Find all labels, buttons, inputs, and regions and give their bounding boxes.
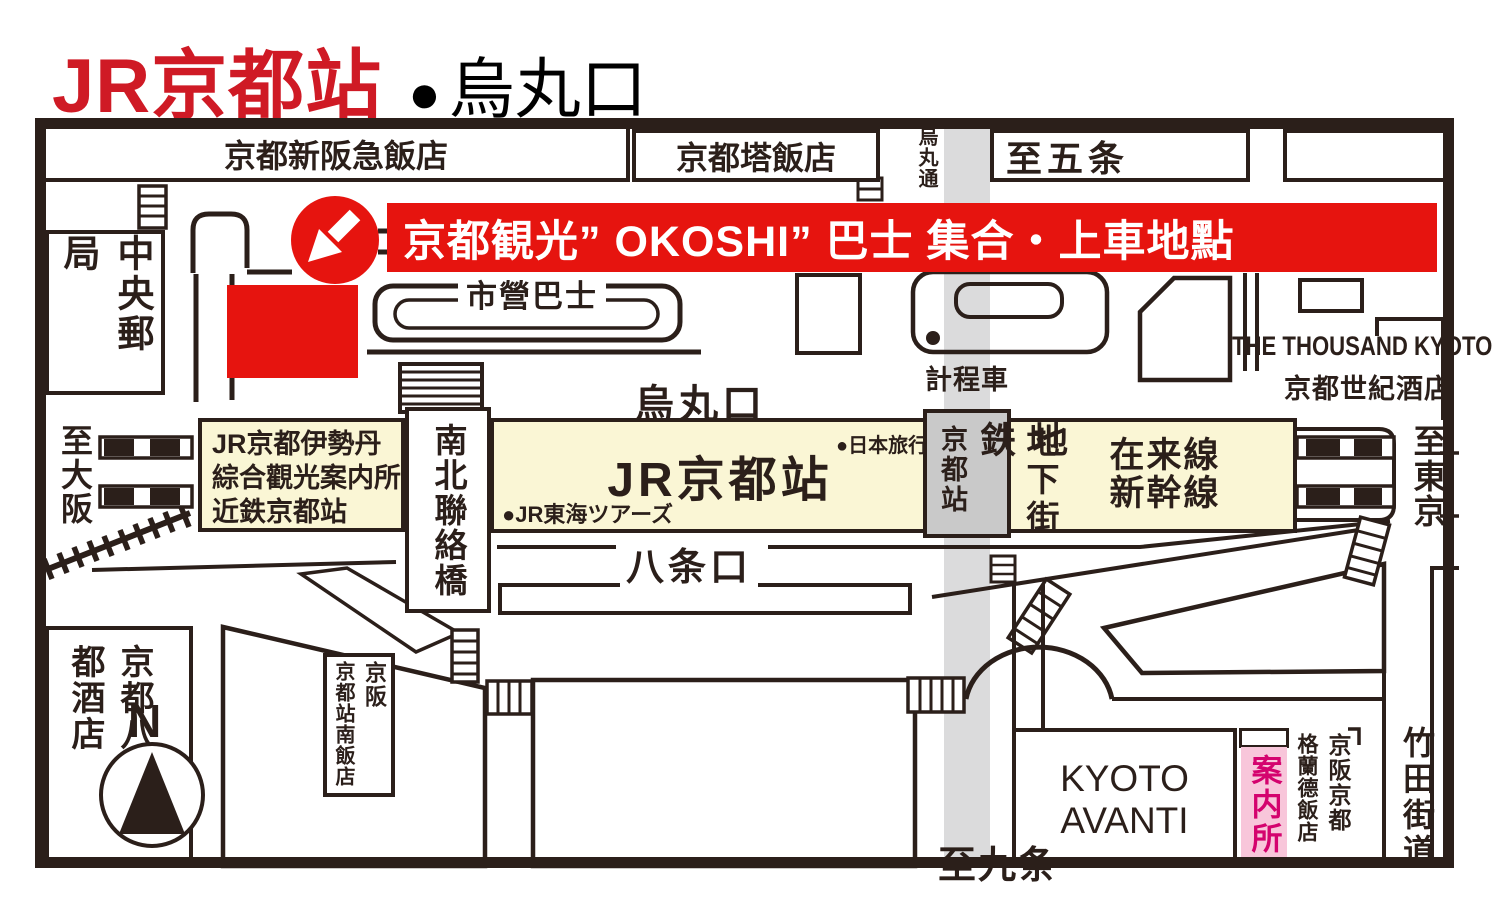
building-label-line3: 近鉄京都站 [212,495,401,529]
location-arrow-icon [291,196,379,284]
building-label: 中央郵局 [51,234,159,391]
road-to-gojo: 至五条 [990,129,1250,182]
bus-entry-road [193,214,247,273]
south-block [533,680,915,866]
conventional-lines-label: 在来線 [1090,437,1240,475]
jr-tokai-tours-label: ●JR東海ツアーズ [502,497,673,529]
north-compass-icon [99,742,205,848]
pedestrian-bridge-icon [400,364,482,412]
building-label-grande: 格蘭德飯店 [1291,733,1321,879]
thousand-kyoto-label-zh: 京都世紀酒店 [1284,367,1452,406]
direction-to-osaka: 至大阪 [52,424,98,526]
building-outline [1300,280,1362,311]
building-shin-hankyu-hotel: 京都新阪急飯店 [46,129,630,182]
street-label-takeda-kaido: 竹田街道 [1394,726,1440,870]
meeting-point-logo [291,196,379,284]
building-label-line1: JR京都伊勢丹 [212,427,401,461]
building-label-line2: 綜合觀光案内所 [212,461,401,495]
subway-kyoto-station: 京都站 地鉄 [923,409,1011,538]
building-kyoto-tower-hotel: 京都塔飯店 [632,129,880,182]
jr-tracks-east-icon [1297,429,1394,520]
street-label-karasuma-dori: 烏丸通 [912,126,941,208]
building-label: 京都新阪急飯店 [224,131,448,177]
compass-north-label: N [128,694,161,748]
building-label: 京都塔飯店 [676,133,836,179]
north-south-bridge: 南北聯絡橋 [405,407,491,613]
info-center-entrance [1239,728,1289,748]
crosswalk-icon [139,186,166,228]
rail-lines-label: 在来線 新幹線 [1090,437,1240,513]
direction-to-kujo: 至九条 [938,834,1058,889]
stairs-icon [452,630,478,682]
crosswalk-icon [908,678,964,712]
building-keihan-station-south-hotel: 京阪 京都站南飯店 [323,653,395,797]
direction-label: 至五条 [994,130,1129,182]
building-outline [1140,278,1230,380]
compass-needle [119,752,185,834]
taxi-label: 計程車 [925,358,1009,397]
bridge-label: 南北聯絡橋 [424,423,472,598]
building-label-hotel: 京都站南飯店 [329,661,358,789]
label-text: 市營巴士 [466,279,598,314]
taxi-rotary [913,272,1107,352]
map-page: JR京都站 ● 烏丸口 [0,0,1500,909]
thousand-kyoto-label-en: THE THOUSAND KYOTO [1232,331,1492,362]
shinkansen-label: 新幹線 [1090,475,1240,513]
building-label-line1: KYOTO [1016,758,1233,800]
boarding-point-marker [227,285,358,378]
building-central-post-office: 中央郵局 [45,230,165,395]
info-center: 案内所 [1241,747,1287,862]
building-label-keihan: 京阪 [358,661,390,789]
building-outline [1283,129,1454,182]
jr-tracks-west-icon [100,437,192,507]
city-bus-terminal-label: 市營巴士 [458,269,606,318]
crosswalk-diagonal-icon [1008,579,1070,653]
taxi-stop-dot-icon [926,331,940,345]
building-isetan-tourist-info: JR京都伊勢丹 綜合觀光案内所 近鉄京都站 [198,418,405,532]
building-label-keihan-kyoto: 京阪京都 [1321,733,1355,879]
info-center-label: 案内所 [1242,754,1287,856]
underground-mall-label: 地下街 [1016,424,1064,538]
crosswalk-icon [487,681,532,714]
banner-text: 京都観光” OKOSHI” 巴士 集合・上車地點 [387,207,1234,269]
rotary-dome-road [966,647,1112,699]
southeast-wedge-building [1104,564,1384,673]
crosswalk-icon [991,556,1015,582]
direction-to-tokyo: 至東京 [1403,424,1451,529]
meeting-point-banner: 京都観光” OKOSHI” 巴士 集合・上車地點 [387,203,1437,272]
hachijo-exit-label: 八条口 [620,536,758,591]
nippon-travel-label: ●日本旅行 [836,429,928,458]
building-keihan-grande-hotel: 京阪京都 格蘭德飯店 [1291,733,1355,883]
building-outline [797,275,860,353]
subway-station-label: 京都站 [933,425,972,515]
